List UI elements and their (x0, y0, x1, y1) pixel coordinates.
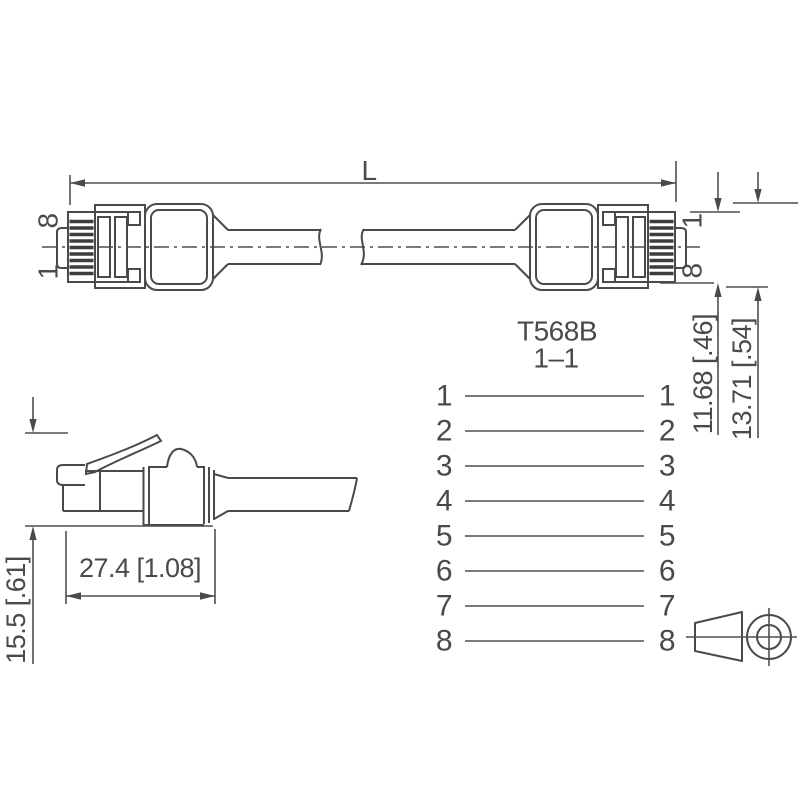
cable-side-view (228, 478, 357, 511)
right-pin-number: 7 (659, 590, 675, 623)
plug-nose (675, 228, 686, 268)
right-pin-bottom-label: 8 (677, 263, 708, 278)
right-pin-top-label: 1 (677, 213, 708, 228)
wiring-row: 5 5 (436, 520, 675, 553)
pin-contacts-hatch (70, 222, 94, 274)
plug-nose (57, 228, 68, 268)
right-pin-number: 4 (659, 485, 675, 518)
left-pin-number: 8 (436, 625, 452, 658)
left-pin-number: 7 (436, 590, 452, 623)
cable-drawing-svg: L (0, 0, 800, 800)
wiring-row: 6 6 (436, 555, 675, 588)
right-pin-number: 3 (659, 450, 675, 483)
boot-taper-top (214, 474, 228, 478)
left-pin-number: 3 (436, 450, 452, 483)
plug-width-dim-label: 11.68 [.46] (688, 314, 718, 434)
arrowhead-down (29, 419, 36, 433)
right-pin-number: 5 (659, 520, 675, 553)
height-dim-label: 15.5 [.61] (1, 556, 31, 664)
plug-side-outline (57, 435, 161, 511)
boot-taper-bottom (214, 511, 228, 519)
plug-width-dimensions: 11.68 [.46] 13.71 [.54] (660, 172, 798, 440)
wiring-row: 4 4 (436, 485, 675, 518)
left-pin-bottom-label: 1 (33, 264, 64, 279)
right-pin-number: 1 (659, 380, 675, 413)
boot-taper-bottom (213, 264, 228, 279)
latch-window-bottom (603, 269, 615, 282)
plug-length-dimension: 27.4 [1.08] (66, 529, 215, 604)
right-pin-number: 6 (659, 555, 675, 588)
wiring-diagram: T568B 1–1 1 1 2 2 3 3 4 4 5 5 6 (436, 316, 675, 658)
boot-taper-top (515, 215, 530, 230)
technical-drawing-page: L (0, 0, 800, 800)
wiring-row: 2 2 (436, 415, 675, 448)
boot-taper-bottom (515, 264, 530, 279)
wiring-row: 1 1 (436, 380, 675, 413)
arrowhead-down (754, 189, 761, 203)
left-pin-number: 1 (436, 380, 452, 413)
left-pin-number: 2 (436, 415, 452, 448)
left-pin-top-label: 8 (33, 213, 64, 228)
boot-taper-top (213, 215, 228, 230)
length-dim-label: L (361, 155, 376, 186)
latch-window-top (128, 212, 140, 225)
left-pin-number: 6 (436, 555, 452, 588)
boot-side-outline (143, 449, 228, 525)
cable-cut-end (349, 478, 357, 511)
arrowhead-up (714, 283, 721, 297)
latch-window-top (603, 212, 615, 225)
latch-window-bottom (128, 269, 140, 282)
top-view-assembly: L (33, 155, 799, 440)
body-width-dim-label: 13.71 [.54] (727, 318, 757, 440)
right-pin-number: 2 (659, 415, 675, 448)
arrowhead-right (661, 179, 676, 187)
boot-and-cable-cross-section (686, 608, 797, 666)
height-dimension: 15.5 [.61] (1, 397, 213, 664)
arrowhead-left (70, 179, 85, 187)
right-pin-number: 8 (659, 625, 675, 658)
pin-contacts-hatch (650, 222, 674, 274)
arrowhead-left (66, 592, 81, 599)
wiring-row: 3 3 (436, 450, 675, 483)
plug-length-dim-label: 27.4 [1.08] (79, 553, 201, 583)
arrowhead-down (714, 198, 721, 212)
arrowhead-right (200, 592, 215, 599)
left-pin-number: 4 (436, 485, 452, 518)
wiring-row: 7 7 (436, 590, 675, 623)
wiring-row: 8 8 (436, 625, 675, 658)
cable-break-left (319, 229, 322, 265)
plug-nose-side (57, 465, 85, 485)
boot-dome (167, 449, 197, 467)
connector-side-view: 15.5 [.61] (1, 397, 357, 664)
left-pin-number: 5 (436, 520, 452, 553)
wiring-scheme-label: 1–1 (533, 343, 578, 374)
arrowhead-up (754, 287, 761, 301)
arrowhead-up (29, 526, 36, 540)
length-dimension: L (70, 155, 676, 205)
